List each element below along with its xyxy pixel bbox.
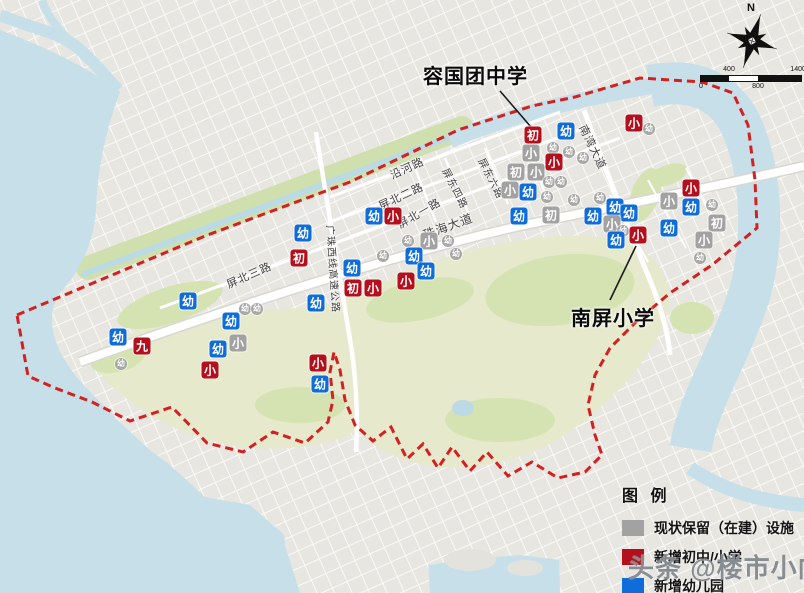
pond: [452, 400, 474, 416]
watermark: 头条 @楼市小向: [628, 548, 804, 585]
scale-segment: [701, 76, 729, 81]
callout-rongguotuan-middle-school: 容国团中学: [423, 60, 528, 89]
scale-label-800: 800: [752, 83, 764, 90]
legend-item-existing: 现状保留（在建）设施: [622, 518, 802, 538]
north-label: N: [747, 2, 755, 14]
callout-nanping-primary-school: 南屏小学: [571, 302, 655, 331]
island: [444, 549, 496, 571]
scale-label-1400M: 1400M: [790, 66, 804, 73]
planning-map: 沿河路屏北二路屏北一路屏北三路屏东四路屏东六路珠海大道南湾大道广珠西线高速公路 …: [0, 0, 804, 593]
scale-segment: [758, 76, 801, 81]
legend-title: 图 例: [622, 482, 802, 506]
legend-label-existing: 现状保留（在建）设施: [654, 518, 794, 538]
scale-label-0: 0: [699, 83, 703, 90]
scale-label-400: 400: [723, 66, 735, 73]
legend-swatch-existing: [622, 520, 644, 536]
scale-bar: 04008001400M: [700, 75, 802, 82]
island: [507, 560, 543, 576]
